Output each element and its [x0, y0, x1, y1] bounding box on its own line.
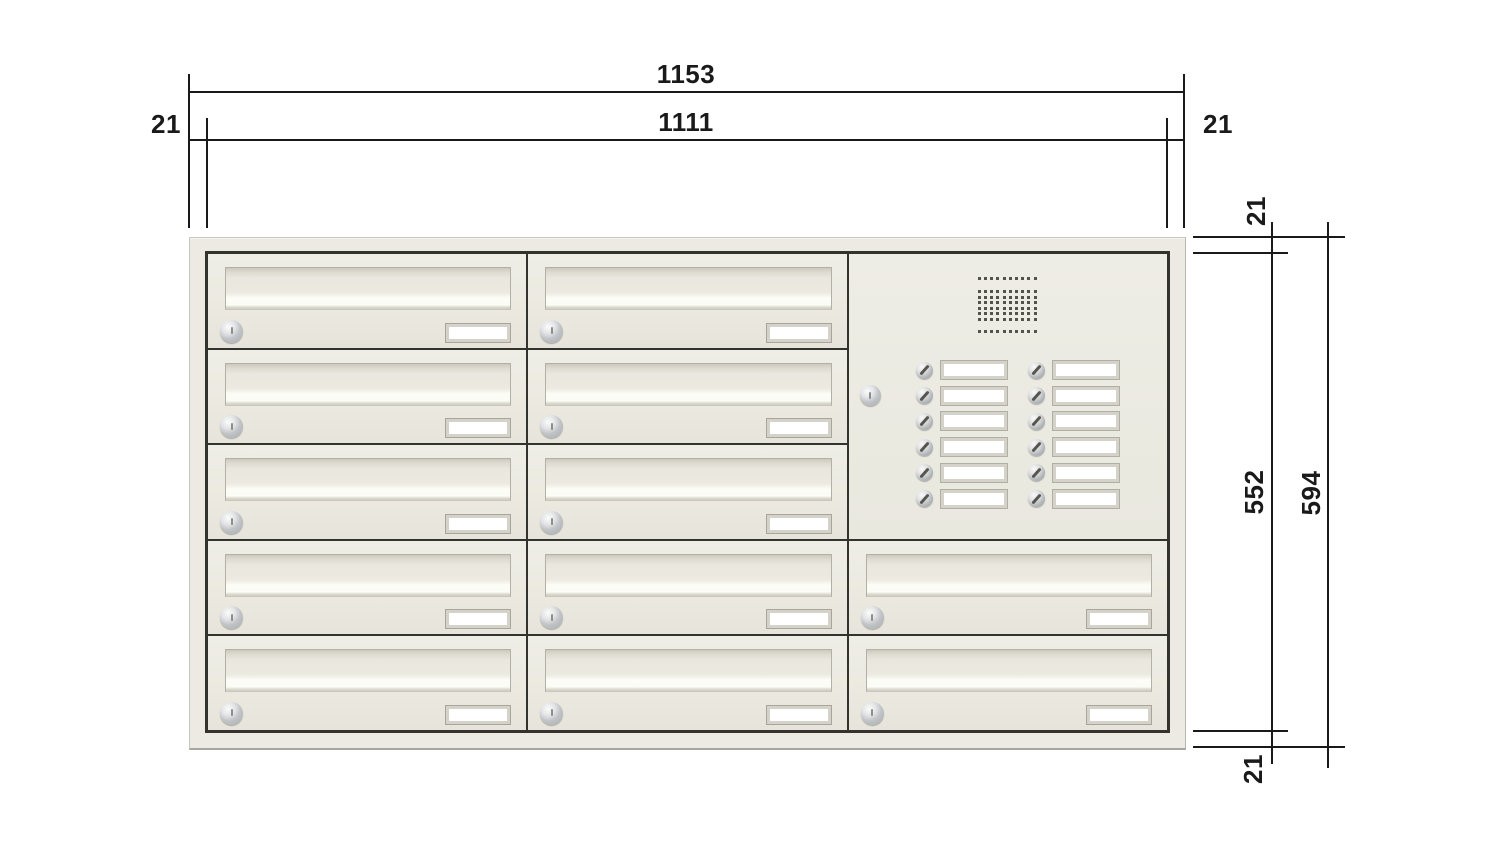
bell-button-icon [916, 387, 933, 404]
lock-icon [540, 606, 563, 629]
bell-name-plate [941, 438, 1007, 456]
speaker-hole [978, 330, 981, 333]
speaker-hole [996, 312, 999, 315]
speaker-hole [1003, 290, 1006, 293]
speaker-hole [1034, 330, 1037, 333]
extension-line-bottom-outer [1193, 746, 1345, 748]
mailbox-door [849, 636, 1167, 730]
speaker-hole [984, 330, 987, 333]
mail-slot [225, 649, 511, 692]
speaker-hole [1027, 296, 1030, 299]
speaker-grille [977, 273, 1039, 337]
speaker-hole [1009, 296, 1012, 299]
mail-slot [225, 458, 511, 501]
dim-overall-width-label: 1153 [586, 61, 786, 87]
speaker-hole [1027, 330, 1030, 333]
lock-icon [860, 385, 881, 406]
bell-name-plate [1053, 438, 1119, 456]
speaker-hole [978, 312, 981, 315]
bell-button-icon [1028, 439, 1045, 456]
name-plate [446, 515, 510, 533]
speaker-hole [1021, 330, 1024, 333]
speaker-hole [1003, 307, 1006, 310]
speaker-hole [978, 277, 981, 280]
name-plate [767, 419, 831, 437]
lock-icon [220, 415, 243, 438]
mailbox-door [208, 350, 526, 444]
speaker-hole [1034, 312, 1037, 315]
mailbox-door [849, 541, 1167, 635]
mailbox-door [208, 636, 526, 730]
bell-name-plate [941, 387, 1007, 405]
speaker-hole [990, 318, 993, 321]
speaker-hole [1021, 301, 1024, 304]
bell-name-plate [1053, 387, 1119, 405]
bell-name-plate [1053, 361, 1119, 379]
extension-line-overall-left [188, 74, 190, 228]
dim-overall-height-label: 594 [1298, 453, 1324, 533]
speaker-hole [1003, 301, 1006, 304]
speaker-hole [1021, 318, 1024, 321]
speaker-hole [978, 301, 981, 304]
name-plate [446, 419, 510, 437]
speaker-hole [1003, 330, 1006, 333]
bell-button-icon [1028, 362, 1045, 379]
dim-inner-width-label: 1111 [586, 109, 786, 135]
mail-slot [545, 554, 831, 597]
dim-left-margin-label: 21 [144, 111, 188, 137]
bell-name-plate [1053, 490, 1119, 508]
speaker-hole [1015, 312, 1018, 315]
speaker-hole [984, 296, 987, 299]
mail-slot [545, 649, 831, 692]
bell-button-icon [916, 464, 933, 481]
extension-line-inner-right [1166, 118, 1168, 228]
lock-icon [540, 511, 563, 534]
lock-icon [220, 606, 243, 629]
speaker-hole [1034, 277, 1037, 280]
mail-slot [866, 554, 1152, 597]
speaker-hole [1021, 290, 1024, 293]
speaker-hole [1009, 318, 1012, 321]
bell-name-plate [1053, 412, 1119, 430]
bell-button-icon [916, 362, 933, 379]
speaker-hole [1009, 312, 1012, 315]
speaker-hole [996, 318, 999, 321]
speaker-hole [1021, 296, 1024, 299]
dimension-line-overall-height [1327, 222, 1329, 768]
lock-icon [220, 702, 243, 725]
mailbox-door [528, 541, 846, 635]
dim-right-margin-label: 21 [1192, 111, 1244, 137]
mail-slot [225, 363, 511, 406]
speaker-hole [984, 277, 987, 280]
mailbox-door [528, 254, 846, 348]
speaker-hole [1015, 296, 1018, 299]
bell-button-icon [1028, 464, 1045, 481]
speaker-hole [1034, 296, 1037, 299]
speaker-hole [1027, 301, 1030, 304]
speaker-hole [1015, 330, 1018, 333]
dimension-line-inner-height [1271, 222, 1273, 764]
dim-inner-height-label: 552 [1241, 452, 1267, 532]
bell-button-icon [916, 490, 933, 507]
dimension-line-inner-width [189, 139, 1184, 141]
speaker-hole [1015, 307, 1018, 310]
speaker-hole [1021, 312, 1024, 315]
speaker-hole [1003, 312, 1006, 315]
name-plate [446, 610, 510, 628]
speaker-hole [996, 290, 999, 293]
speaker-hole [990, 301, 993, 304]
mail-slot [866, 649, 1152, 692]
mailbox-door [528, 445, 846, 539]
bell-button-icon [916, 413, 933, 430]
dim-bottom-margin-label: 21 [1240, 729, 1266, 809]
speaker-hole [984, 301, 987, 304]
speaker-hole [990, 307, 993, 310]
speaker-hole [1015, 277, 1018, 280]
speaker-hole [978, 307, 981, 310]
speaker-hole [1021, 307, 1024, 310]
speaker-hole [1003, 296, 1006, 299]
drawing-canvas: 1153 1111 21 21 21 552 594 21 [0, 0, 1500, 856]
dimension-line-overall-width [189, 91, 1184, 93]
speaker-hole [984, 307, 987, 310]
speaker-hole [1027, 290, 1030, 293]
speaker-hole [1003, 318, 1006, 321]
speaker-hole [1021, 277, 1024, 280]
mailbox-door [208, 445, 526, 539]
mailbox-door [208, 541, 526, 635]
bell-name-plate [941, 361, 1007, 379]
mail-slot [225, 554, 511, 597]
mailbox-door [208, 254, 526, 348]
name-plate [767, 610, 831, 628]
speaker-hole [978, 296, 981, 299]
bell-name-plate [1053, 464, 1119, 482]
lock-icon [861, 606, 884, 629]
speaker-hole [984, 318, 987, 321]
name-plate [767, 324, 831, 342]
speaker-hole [996, 277, 999, 280]
bell-button-icon [1028, 387, 1045, 404]
speaker-hole [990, 290, 993, 293]
mailbox-grid [205, 251, 1170, 733]
extension-line-top-outer [1193, 236, 1345, 238]
speaker-hole [996, 301, 999, 304]
lock-icon [861, 702, 884, 725]
speaker-hole [990, 312, 993, 315]
name-plate [767, 515, 831, 533]
bell-button-icon [916, 439, 933, 456]
lock-icon [540, 320, 563, 343]
speaker-hole [1009, 301, 1012, 304]
name-plate [1087, 610, 1151, 628]
speaker-hole [990, 330, 993, 333]
speaker-hole [1015, 301, 1018, 304]
speaker-hole [990, 277, 993, 280]
speaker-hole [984, 312, 987, 315]
mail-slot [225, 267, 511, 310]
mailbox-door [528, 636, 846, 730]
speaker-hole [1027, 277, 1030, 280]
bell-name-plate [941, 464, 1007, 482]
name-plate [767, 706, 831, 724]
extension-line-top-inner [1193, 252, 1288, 254]
name-plate [446, 706, 510, 724]
dim-top-margin-label: 21 [1243, 171, 1269, 251]
name-plate [1087, 706, 1151, 724]
speaker-hole [1009, 290, 1012, 293]
speaker-hole [996, 307, 999, 310]
extension-line-overall-right [1183, 74, 1185, 228]
speaker-hole [1034, 307, 1037, 310]
speaker-hole [1003, 277, 1006, 280]
speaker-hole [1009, 330, 1012, 333]
speaker-hole [1034, 318, 1037, 321]
bell-button-icon [1028, 490, 1045, 507]
mail-slot [545, 267, 831, 310]
speaker-hole [978, 318, 981, 321]
speaker-hole [1027, 312, 1030, 315]
speaker-hole [1015, 318, 1018, 321]
mail-slot [545, 363, 831, 406]
speaker-hole [1009, 307, 1012, 310]
extension-line-inner-left [206, 118, 208, 228]
mail-slot [545, 458, 831, 501]
name-plate [446, 324, 510, 342]
lock-icon [540, 702, 563, 725]
speaker-hole [1027, 307, 1030, 310]
speaker-hole [1034, 301, 1037, 304]
speaker-hole [996, 330, 999, 333]
speaker-hole [1034, 290, 1037, 293]
lock-icon [220, 320, 243, 343]
lock-icon [540, 415, 563, 438]
intercom-panel [849, 254, 1167, 539]
speaker-hole [978, 290, 981, 293]
speaker-hole [1027, 318, 1030, 321]
bell-name-plate [941, 490, 1007, 508]
speaker-hole [1015, 290, 1018, 293]
speaker-hole [984, 290, 987, 293]
speaker-hole [996, 296, 999, 299]
mailbox-door [528, 350, 846, 444]
speaker-hole [990, 296, 993, 299]
speaker-hole [1009, 277, 1012, 280]
bell-button-icon [1028, 413, 1045, 430]
bell-name-plate [941, 412, 1007, 430]
lock-icon [220, 511, 243, 534]
